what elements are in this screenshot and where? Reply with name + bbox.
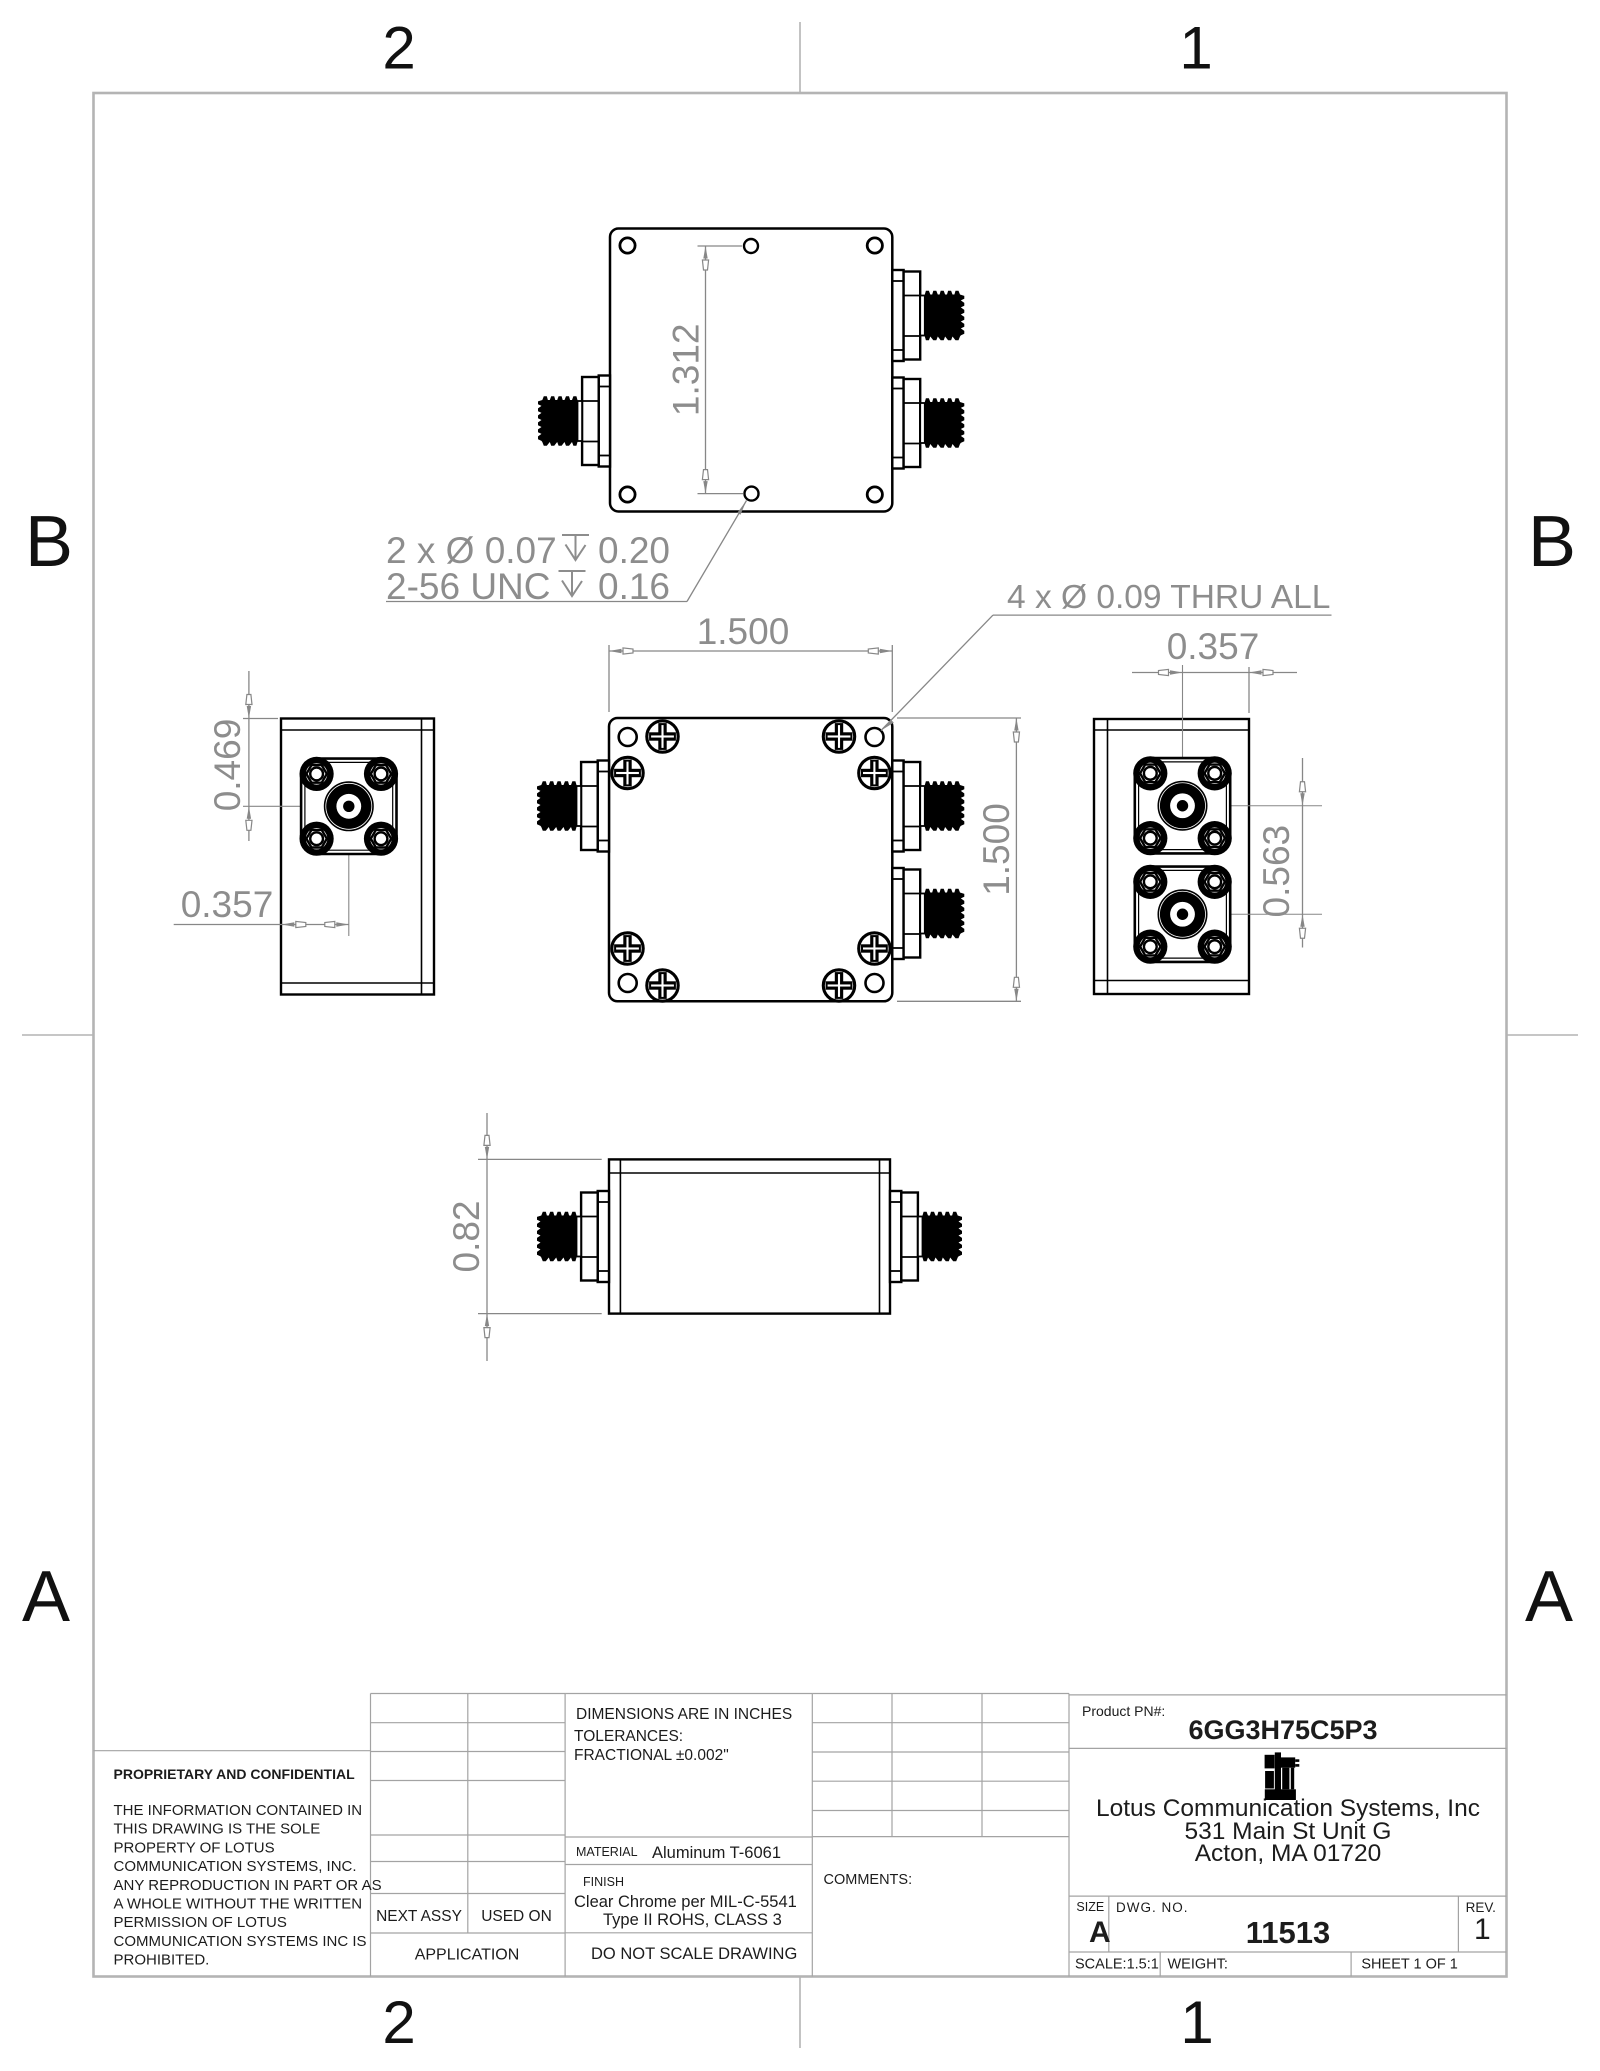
svg-text:2: 2 bbox=[382, 15, 415, 82]
svg-text:Acton, MA 01720: Acton, MA 01720 bbox=[1195, 1840, 1382, 1867]
svg-text:0.563: 0.563 bbox=[1256, 825, 1297, 918]
svg-text:WEIGHT:: WEIGHT: bbox=[1168, 1957, 1228, 1973]
svg-text:PROPRIETARY AND CONFIDENTIAL: PROPRIETARY AND CONFIDENTIAL bbox=[114, 1766, 356, 1782]
svg-text:0.82: 0.82 bbox=[446, 1200, 487, 1272]
svg-text:SIZE: SIZE bbox=[1076, 1900, 1104, 1914]
svg-text:NEXT ASSY: NEXT ASSY bbox=[376, 1908, 462, 1925]
svg-text:11513: 11513 bbox=[1246, 1915, 1331, 1950]
svg-text:2 x Ø 0.07: 2 x Ø 0.07 bbox=[386, 530, 557, 571]
svg-text:0.469: 0.469 bbox=[207, 719, 248, 812]
svg-text:A: A bbox=[1525, 1557, 1573, 1637]
svg-text:PROPERTY OF LOTUS: PROPERTY OF LOTUS bbox=[114, 1839, 275, 1856]
svg-text:1: 1 bbox=[1474, 1913, 1491, 1946]
svg-text:0.357: 0.357 bbox=[181, 884, 274, 925]
svg-text:1.500: 1.500 bbox=[976, 803, 1017, 896]
svg-text:TOLERANCES:: TOLERANCES: bbox=[574, 1728, 683, 1745]
svg-text:4 x Ø 0.09 THRU ALL: 4 x Ø 0.09 THRU ALL bbox=[1007, 579, 1330, 616]
svg-text:PERMISSION OF LOTUS: PERMISSION OF LOTUS bbox=[114, 1914, 287, 1931]
svg-text:THE INFORMATION CONTAINED IN: THE INFORMATION CONTAINED IN bbox=[114, 1802, 363, 1819]
svg-text:Product PN#:: Product PN#: bbox=[1082, 1703, 1165, 1719]
svg-text:1: 1 bbox=[1180, 1989, 1213, 2056]
svg-text:6GG3H75C5P3: 6GG3H75C5P3 bbox=[1188, 1715, 1377, 1745]
svg-text:THIS DRAWING IS THE SOLE: THIS DRAWING IS THE SOLE bbox=[114, 1821, 321, 1838]
svg-text:DWG. NO.: DWG. NO. bbox=[1116, 1900, 1189, 1915]
svg-text:A: A bbox=[22, 1557, 70, 1637]
svg-text:2: 2 bbox=[382, 1989, 415, 2056]
svg-text:1.312: 1.312 bbox=[666, 324, 707, 417]
svg-text:Type II ROHS, CLASS 3: Type II ROHS, CLASS 3 bbox=[603, 1911, 782, 1929]
svg-text:PROHIBITED.: PROHIBITED. bbox=[114, 1952, 210, 1969]
svg-text:FRACTIONAL ±0.002": FRACTIONAL ±0.002" bbox=[574, 1747, 729, 1764]
svg-text:SCALE:1.5:1: SCALE:1.5:1 bbox=[1075, 1957, 1159, 1973]
svg-text:COMMUNICATION SYSTEMS, INC.: COMMUNICATION SYSTEMS, INC. bbox=[114, 1858, 357, 1875]
svg-text:FINISH: FINISH bbox=[583, 1875, 624, 1889]
svg-text:USED ON: USED ON bbox=[481, 1908, 552, 1925]
svg-text:COMMENTS:: COMMENTS: bbox=[824, 1872, 913, 1888]
svg-text:MATERIAL: MATERIAL bbox=[576, 1845, 638, 1859]
svg-text:2-56 UNC: 2-56 UNC bbox=[386, 566, 551, 607]
svg-text:B: B bbox=[1528, 502, 1576, 582]
svg-text:0.16: 0.16 bbox=[598, 566, 670, 607]
svg-text:A: A bbox=[1089, 1916, 1111, 1949]
svg-text:B: B bbox=[25, 502, 73, 582]
svg-text:SHEET 1 OF 1: SHEET 1 OF 1 bbox=[1361, 1957, 1457, 1973]
svg-text:0.357: 0.357 bbox=[1167, 626, 1260, 667]
svg-text:A WHOLE WITHOUT THE WRITTEN: A WHOLE WITHOUT THE WRITTEN bbox=[114, 1896, 363, 1913]
svg-text:1.500: 1.500 bbox=[697, 611, 790, 652]
svg-text:ANY REPRODUCTION IN PART OR AS: ANY REPRODUCTION IN PART OR AS bbox=[114, 1877, 382, 1894]
svg-text:Aluminum T-6061: Aluminum T-6061 bbox=[652, 1844, 781, 1862]
svg-text:APPLICATION: APPLICATION bbox=[415, 1947, 520, 1964]
svg-text:DO NOT SCALE DRAWING: DO NOT SCALE DRAWING bbox=[591, 1945, 797, 1963]
svg-text:COMMUNICATION SYSTEMS INC IS: COMMUNICATION SYSTEMS INC IS bbox=[114, 1933, 367, 1950]
svg-text:1: 1 bbox=[1179, 15, 1212, 82]
svg-text:0.20: 0.20 bbox=[598, 530, 670, 571]
svg-text:DIMENSIONS ARE IN INCHES: DIMENSIONS ARE IN INCHES bbox=[576, 1706, 792, 1723]
svg-text:Clear Chrome per MIL-C-5541: Clear Chrome per MIL-C-5541 bbox=[574, 1893, 797, 1911]
